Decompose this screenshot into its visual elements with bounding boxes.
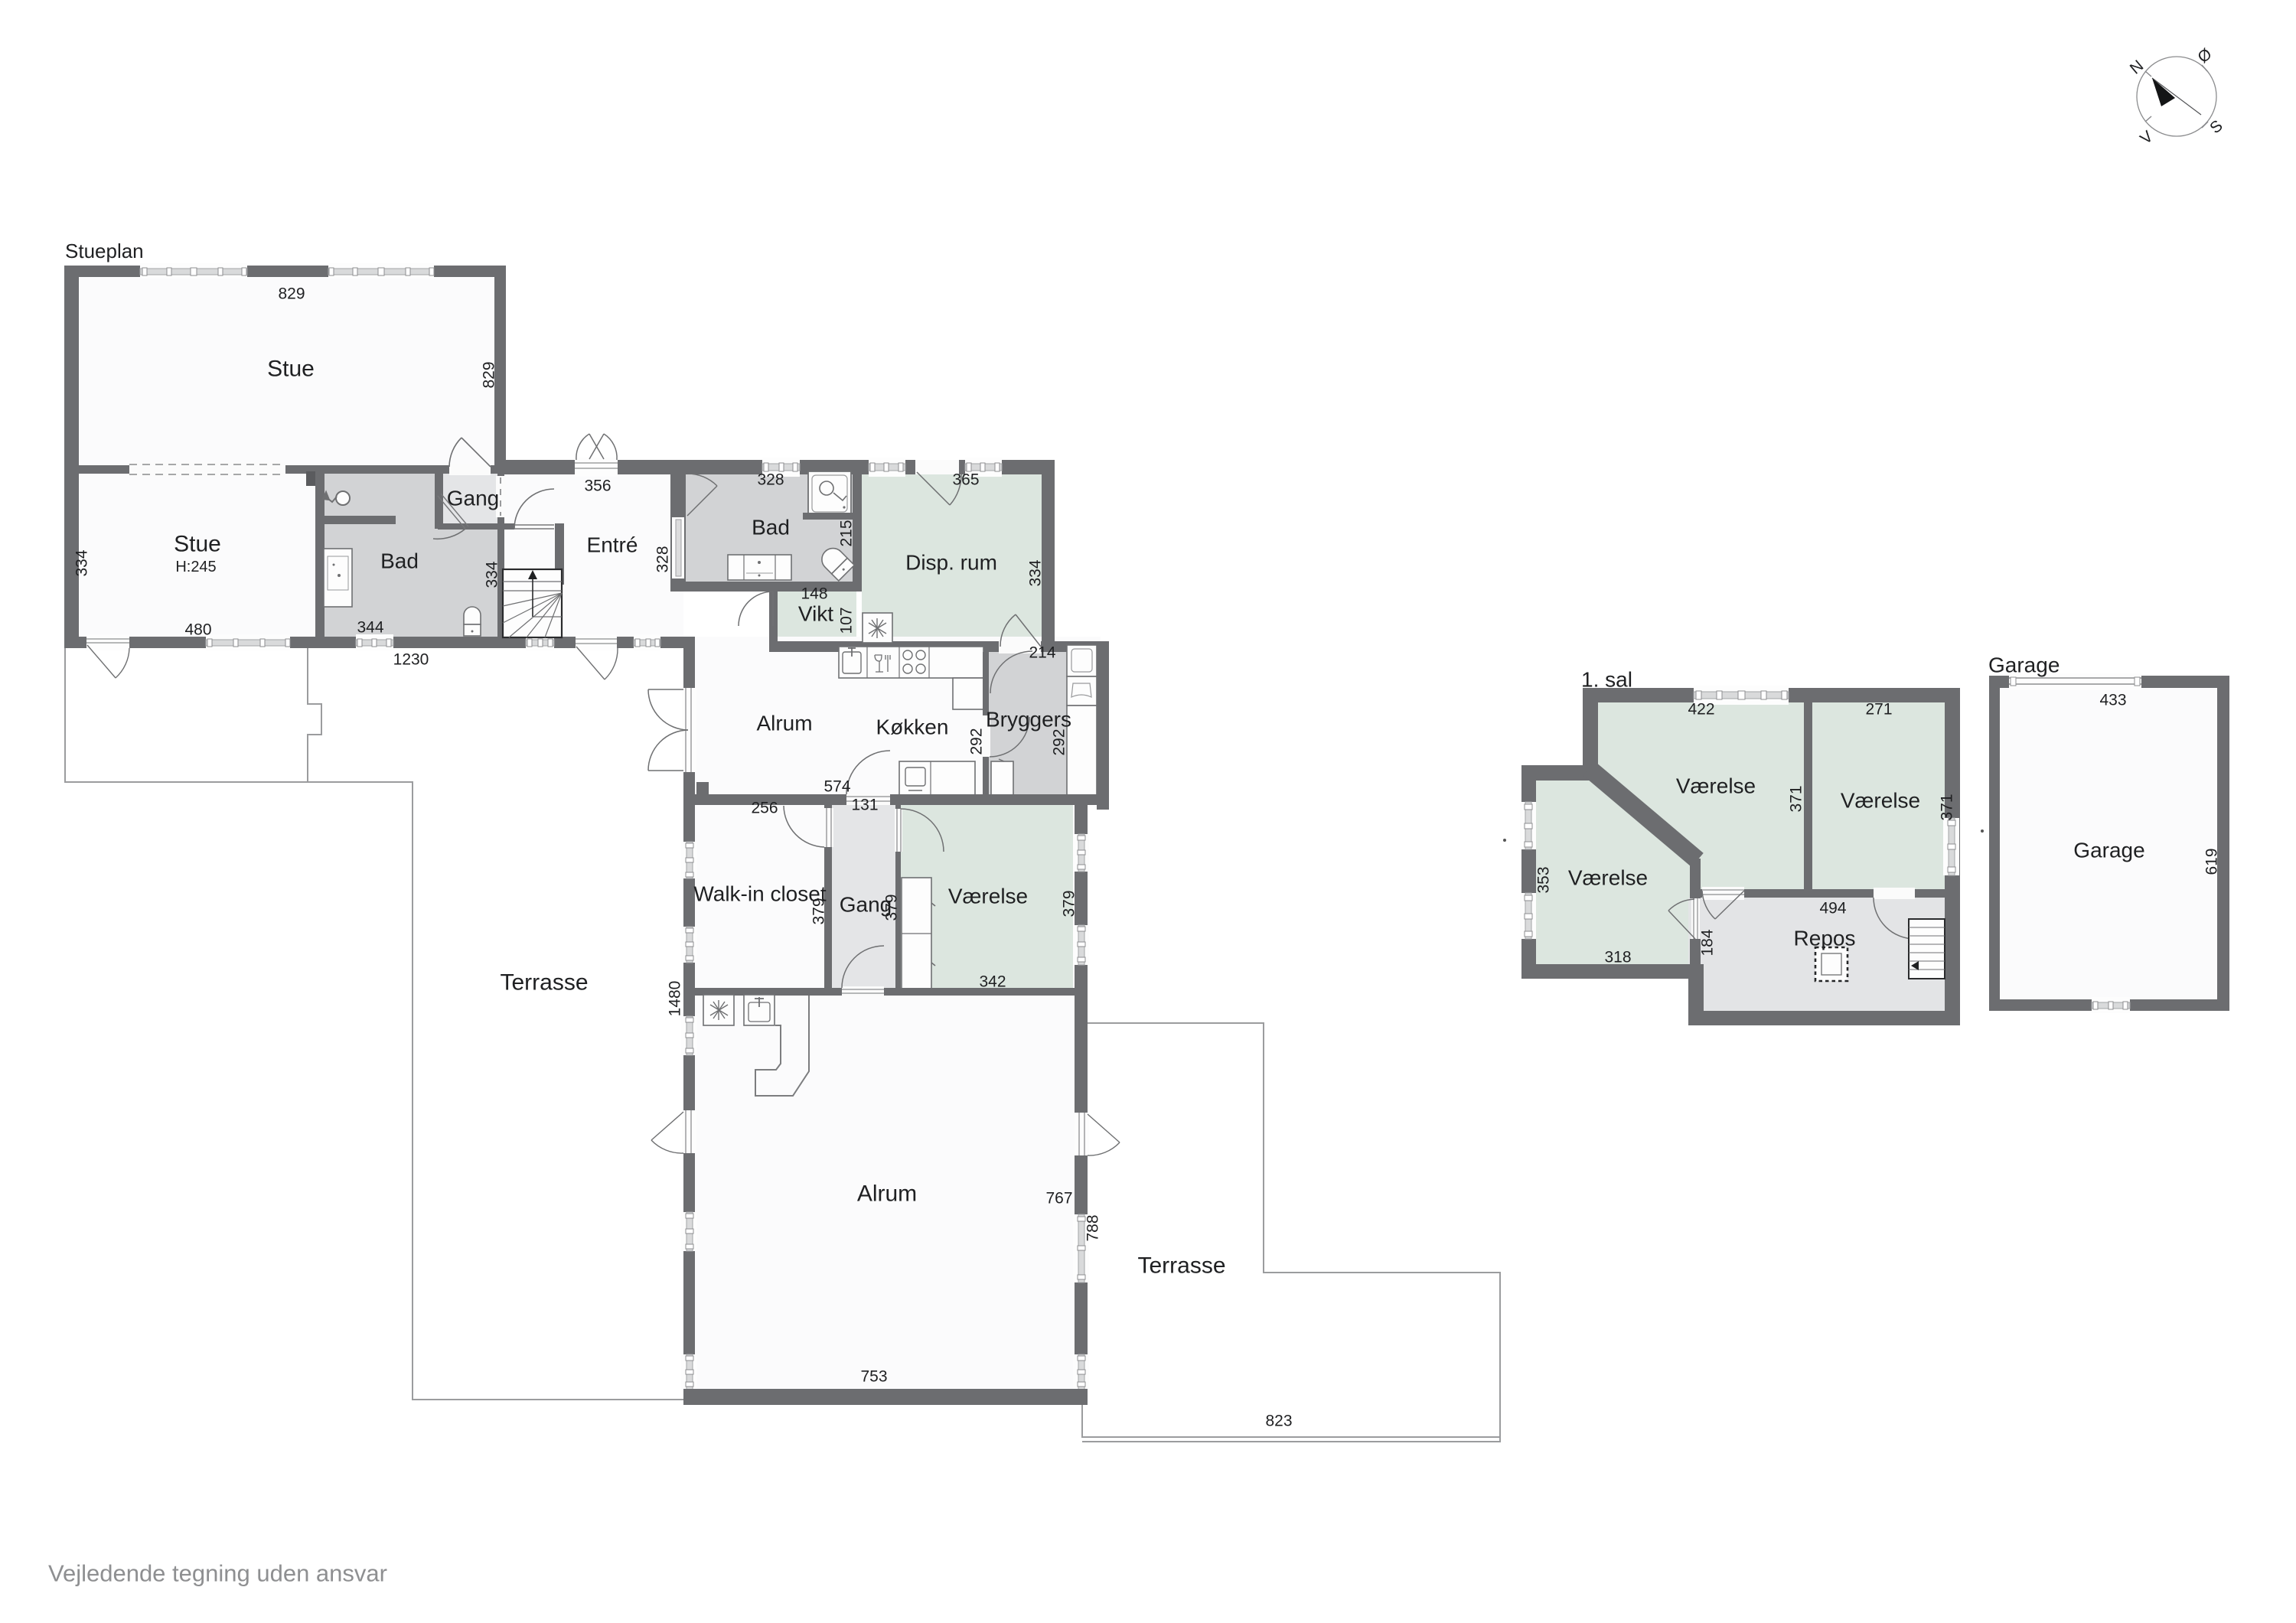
svg-text:379: 379 <box>810 898 828 924</box>
svg-text:H:245: H:245 <box>175 559 216 575</box>
svg-text:829: 829 <box>278 285 305 303</box>
svg-text:823: 823 <box>1265 1413 1292 1430</box>
svg-text:433: 433 <box>2099 692 2126 709</box>
svg-text:371: 371 <box>1939 794 1956 820</box>
svg-text:480: 480 <box>184 621 211 639</box>
svg-text:Værelse: Værelse <box>948 885 1028 908</box>
svg-text:Entré: Entré <box>587 533 638 557</box>
svg-text:371: 371 <box>1788 785 1805 812</box>
svg-text:Vejledende tegning uden ansvar: Vejledende tegning uden ansvar <box>48 1560 387 1587</box>
svg-text:767: 767 <box>1045 1190 1072 1207</box>
svg-text:184: 184 <box>1699 929 1717 956</box>
svg-text:Stue: Stue <box>174 532 221 557</box>
svg-text:422: 422 <box>1688 701 1714 719</box>
svg-text:Terrasse: Terrasse <box>500 970 588 996</box>
svg-text:Garage: Garage <box>1988 653 2060 677</box>
svg-text:344: 344 <box>357 619 383 637</box>
svg-text:829: 829 <box>481 361 498 388</box>
svg-text:292: 292 <box>1051 728 1068 755</box>
svg-text:Værelse: Værelse <box>1841 789 1920 813</box>
svg-text:1230: 1230 <box>393 651 429 669</box>
svg-text:328: 328 <box>654 546 672 572</box>
svg-text:Værelse: Værelse <box>1568 866 1648 890</box>
svg-text:Disp. rum: Disp. rum <box>905 551 997 575</box>
svg-text:342: 342 <box>979 973 1006 991</box>
svg-text:Værelse: Værelse <box>1676 774 1756 798</box>
svg-text:353: 353 <box>1535 866 1553 893</box>
svg-text:1. sal: 1. sal <box>1581 668 1632 692</box>
svg-text:292: 292 <box>968 728 986 754</box>
svg-text:Bad: Bad <box>380 549 419 573</box>
svg-text:334: 334 <box>484 561 501 588</box>
svg-text:753: 753 <box>860 1368 887 1386</box>
svg-text:1480: 1480 <box>667 981 684 1017</box>
svg-text:148: 148 <box>801 585 827 603</box>
svg-text:Garage: Garage <box>2073 839 2144 862</box>
svg-text:619: 619 <box>2203 848 2221 875</box>
svg-text:Alrum: Alrum <box>756 712 812 735</box>
svg-text:365: 365 <box>952 471 979 489</box>
svg-text:Stue: Stue <box>267 357 315 382</box>
svg-text:271: 271 <box>1865 701 1892 719</box>
svg-text:494: 494 <box>1819 900 1846 917</box>
svg-text:256: 256 <box>751 800 778 817</box>
svg-text:Køkken: Køkken <box>876 715 949 739</box>
svg-text:Vikt: Vikt <box>798 602 833 626</box>
svg-text:107: 107 <box>838 607 856 634</box>
svg-text:Repos: Repos <box>1794 927 1856 950</box>
svg-text:Bad: Bad <box>752 516 790 539</box>
svg-text:Terrasse: Terrasse <box>1137 1253 1225 1279</box>
svg-text:379: 379 <box>883 894 901 921</box>
svg-text:Gang: Gang <box>447 487 500 510</box>
svg-text:214: 214 <box>1029 644 1055 662</box>
svg-text:334: 334 <box>1027 559 1045 586</box>
svg-text:788: 788 <box>1084 1214 1102 1241</box>
svg-text:356: 356 <box>584 477 611 495</box>
svg-text:Stueplan: Stueplan <box>65 240 144 262</box>
svg-text:379: 379 <box>1061 890 1078 917</box>
svg-text:131: 131 <box>851 797 878 814</box>
svg-text:574: 574 <box>823 778 850 796</box>
svg-text:215: 215 <box>838 520 856 546</box>
svg-text:Alrum: Alrum <box>857 1181 917 1207</box>
svg-text:334: 334 <box>73 549 91 576</box>
svg-text:328: 328 <box>757 471 784 489</box>
svg-text:Bryggers: Bryggers <box>986 708 1071 732</box>
svg-text:Walk-in closet: Walk-in closet <box>693 882 826 906</box>
svg-text:318: 318 <box>1604 949 1631 966</box>
